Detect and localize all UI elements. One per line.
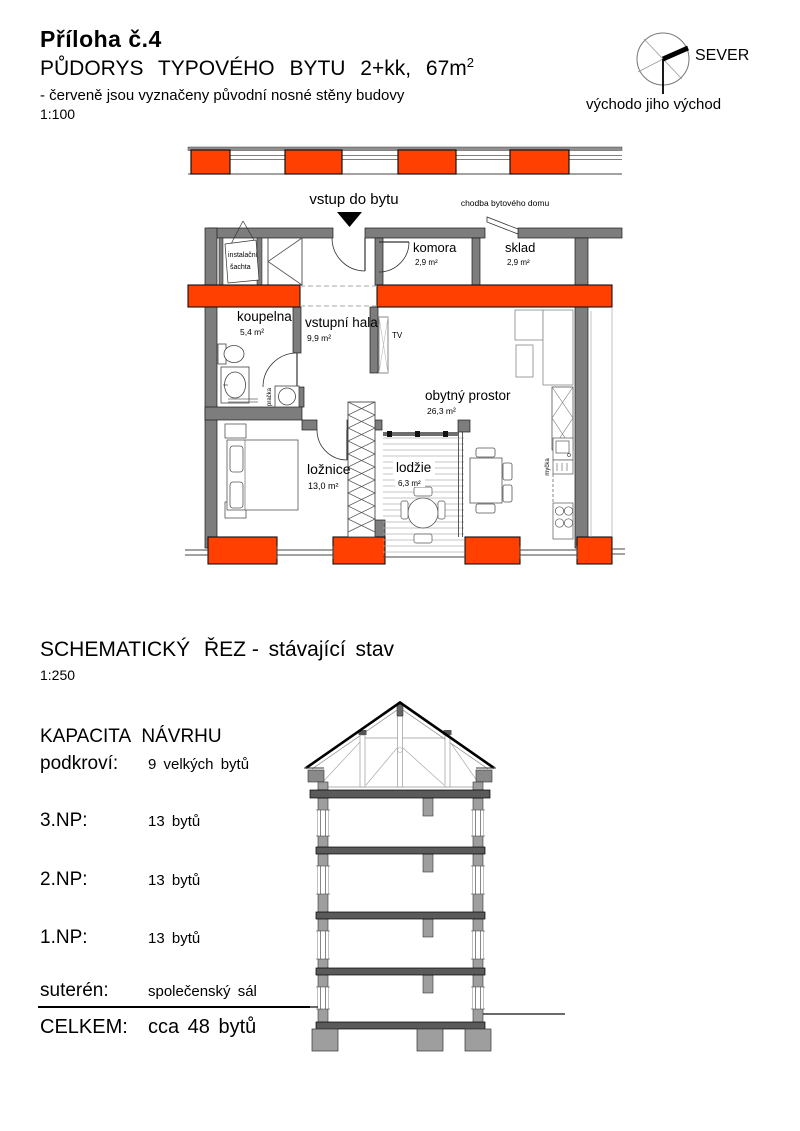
capacity-label: 3.NP:	[40, 810, 148, 832]
nightstand-icon	[225, 424, 246, 438]
compass: SEVER východo jiho východ	[578, 24, 800, 116]
tv-cabinet	[379, 317, 388, 373]
room-label-loznice: ložnice	[307, 461, 351, 477]
capacity-heading: KAPACITA NÁVRHU	[40, 726, 222, 748]
pillow-icon	[230, 446, 243, 472]
plan-scale: 1:100	[40, 106, 75, 122]
chair-icon	[476, 448, 495, 457]
capacity-total-row: CELKEM: cca 48 bytů	[40, 1016, 256, 1039]
loggia	[383, 431, 465, 557]
attachment-title: Příloha č.4	[40, 26, 162, 53]
area-lodzie: 6,3 m²	[398, 479, 421, 488]
room-label-lodzie: lodžie	[396, 460, 431, 475]
washer-label: pračka	[267, 387, 273, 406]
section-title: SCHEMATICKÝ ŘEZ - stávající stav	[40, 638, 394, 662]
chair-icon	[438, 501, 445, 519]
entry-closet	[268, 238, 302, 285]
corridor-facade-strip	[188, 147, 622, 174]
entry-arrow-icon	[337, 212, 362, 227]
dishwasher-icon	[553, 460, 573, 474]
room-label-sklad: sklad	[505, 240, 535, 255]
capacity-value: 13 bytů	[148, 927, 200, 949]
chair-icon	[401, 501, 408, 519]
capacity-total-value: cca 48 bytů	[148, 1016, 256, 1039]
building-section	[220, 698, 580, 1053]
floor-slabs	[310, 790, 490, 1029]
capacity-row: 1.NP: 13 bytů	[40, 927, 200, 949]
tv-label: TV	[392, 331, 403, 340]
chair-icon	[414, 487, 432, 496]
legend-note: - červeně jsou vyznačeny původní nosné s…	[40, 87, 404, 104]
capacity-row: 2.NP: 13 bytů	[40, 869, 200, 891]
total-divider	[38, 1006, 310, 1008]
chair-icon	[476, 504, 495, 513]
capacity-label: 1.NP:	[40, 927, 148, 949]
bedroom-furniture	[225, 424, 298, 518]
coffee-table-icon	[516, 345, 533, 377]
capacity-label: podkroví:	[40, 753, 148, 775]
capacity-label: 2.NP:	[40, 869, 148, 891]
capacity-value: 13 bytů	[148, 810, 200, 832]
corridor-label: chodba bytového domu	[461, 198, 550, 208]
compass-north-label: SEVER	[695, 47, 749, 64]
area-sklad: 2,9 m²	[507, 258, 530, 267]
drawing-sheet: Příloha č.4 PŮDORYS TYPOVÉHO BYTU 2+kk, …	[0, 0, 800, 1131]
wardrobe	[348, 402, 375, 537]
capacity-value: 13 bytů	[148, 869, 200, 891]
sofa-icon	[515, 310, 543, 340]
shaft-label-2: šachta	[230, 264, 251, 271]
compass-rose-icon	[637, 33, 689, 94]
capacity-row: podkroví: 9 velkých bytů	[40, 753, 249, 775]
dishwasher-label: myčka	[545, 458, 551, 476]
capacity-value: 9 velkých bytů	[148, 753, 249, 775]
page-title-superscript: 2	[467, 55, 474, 70]
chair-icon	[503, 463, 512, 480]
entry-label: vstup do bytu	[309, 191, 398, 208]
area-loznice: 13,0 m²	[308, 481, 339, 491]
page-title-text: PŮDORYS TYPOVÉHO BYTU 2+kk, 67m	[40, 57, 467, 80]
section-windows	[316, 810, 485, 1009]
roof-truss	[304, 703, 496, 788]
room-label-koupelna: koupelna	[237, 309, 292, 324]
living-furniture	[470, 310, 573, 513]
area-koupelna: 5,4 m²	[240, 327, 264, 337]
area-komora: 2,9 m²	[415, 258, 438, 267]
loggia-table-icon	[408, 498, 438, 528]
toilet-icon	[224, 346, 244, 363]
capacity-row: 3.NP: 13 bytů	[40, 810, 200, 832]
room-label-hala: vstupní hala	[305, 315, 378, 330]
pillow-icon	[230, 482, 243, 508]
room-label-komora: komora	[413, 240, 457, 255]
chair-icon	[414, 534, 432, 543]
wall-opening-dashed	[300, 286, 377, 306]
section-title-suffix: - stávající stav	[252, 638, 394, 661]
area-obytny: 26,3 m²	[427, 406, 456, 416]
capacity-label: suterén:	[40, 980, 148, 1002]
capacity-value: společenský sál	[148, 980, 257, 1002]
room-label-obytny: obytný prostor	[425, 388, 511, 403]
foundations	[312, 1029, 491, 1051]
section-walls	[318, 782, 483, 1029]
shaft-label-1: instalační	[228, 252, 258, 259]
area-hala: 9,9 m²	[307, 333, 331, 343]
kitchen	[553, 438, 573, 539]
sofa-icon	[543, 310, 573, 385]
section-title-main: SCHEMATICKÝ ŘEZ	[40, 638, 246, 661]
chair-icon	[503, 485, 512, 502]
section-scale: 1:250	[40, 667, 75, 683]
bathroom-fixtures	[218, 344, 299, 407]
capacity-row: suterén: společenský sál	[40, 980, 257, 1002]
floor-plan: vstup do bytu chodba bytového domu	[185, 145, 625, 565]
ground-line	[230, 1007, 565, 1014]
page-title: PŮDORYS TYPOVÉHO BYTU 2+kk, 67m2	[40, 55, 474, 81]
capacity-total-label: CELKEM:	[40, 1016, 148, 1039]
dining-table-icon	[470, 458, 502, 503]
compass-direction-label: východo jiho východ	[586, 96, 721, 113]
